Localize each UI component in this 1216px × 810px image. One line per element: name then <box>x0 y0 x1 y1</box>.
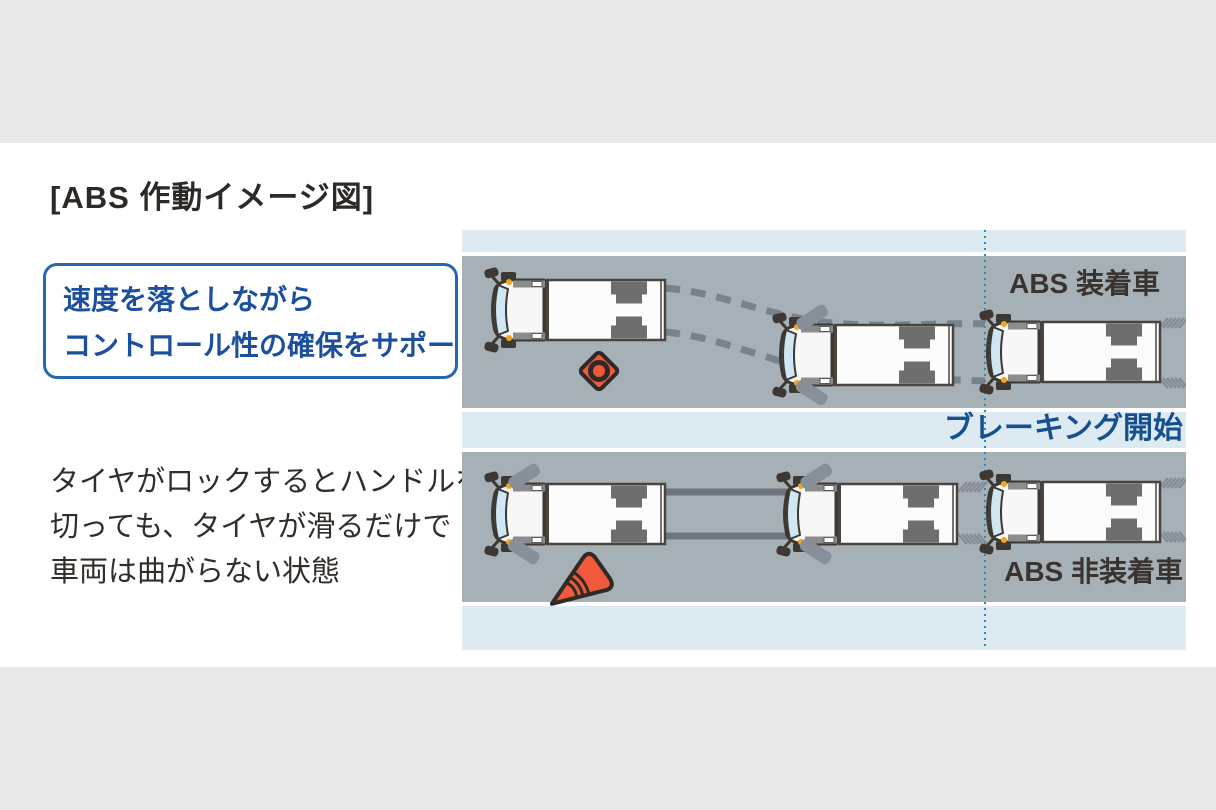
braking-start-label: ブレーキング開始 <box>944 414 1183 444</box>
abs-benefit-callout: 速度を落としながら コントロール性の確保をサポート <box>43 263 458 379</box>
description-line-3: 車両は曲がらない状態 <box>50 550 484 595</box>
top-sky-strip <box>462 230 1186 252</box>
abs-not-equipped-label: ABS 非装着車 <box>1004 558 1183 586</box>
truck-abs-braking-start <box>980 311 1160 394</box>
bottom-gray-band <box>0 667 1216 810</box>
truck-non-abs-braking-start <box>980 471 1160 554</box>
callout-line-1: 速度を落としながら <box>63 286 315 314</box>
top-gray-band <box>0 0 1216 143</box>
callout-line-2: コントロール性の確保をサポート <box>63 332 483 360</box>
abs-equipped-label: ABS 装着車 <box>1009 270 1160 298</box>
description-line-2: 切っても、タイヤが滑るだけで <box>50 505 484 550</box>
bottom-sky-strip <box>462 606 1186 650</box>
abs-diagram-page: [ABS 作動イメージ図] 速度を落としながら コントロール性の確保をサポート … <box>0 0 1216 810</box>
page-title: [ABS 作動イメージ図] <box>50 172 374 217</box>
lockup-description: タイヤがロックするとハンドルを 切っても、タイヤが滑るだけで 車両は曲がらない状… <box>50 460 484 595</box>
truck-abs-after-avoid <box>485 269 665 352</box>
abs-comparison-diagram: ABS 装着車 ブレーキング開始 ABS 非装着車 <box>462 230 1186 650</box>
description-line-1: タイヤがロックするとハンドルを <box>50 460 484 505</box>
